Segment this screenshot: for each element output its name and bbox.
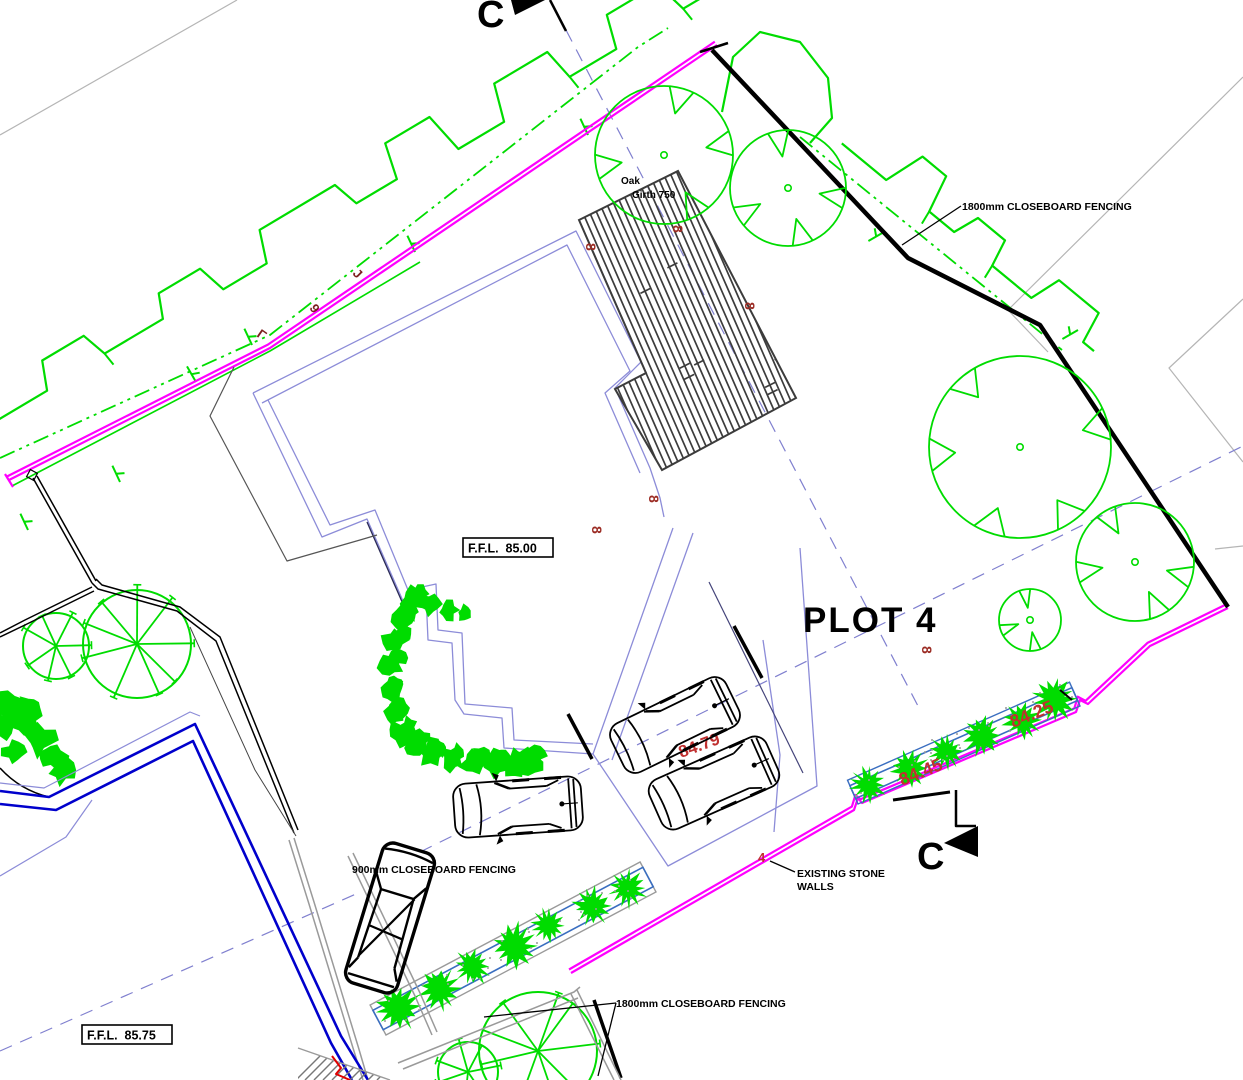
svg-text:4: 4: [758, 850, 766, 865]
svg-text:8: 8: [919, 646, 935, 654]
svg-text:WALLS: WALLS: [797, 881, 834, 893]
svg-text:C: C: [917, 836, 944, 878]
svg-text:EXISTING STONE: EXISTING STONE: [797, 868, 885, 880]
svg-text:C: C: [477, 0, 504, 36]
svg-text:Girth 750: Girth 750: [632, 190, 676, 201]
svg-text:Oak: Oak: [621, 176, 640, 187]
svg-text:1800mm CLOSEBOARD FENCING: 1800mm CLOSEBOARD FENCING: [962, 201, 1132, 213]
svg-text:PLOT 4: PLOT 4: [803, 601, 938, 640]
svg-text:8: 8: [589, 526, 605, 534]
svg-text:8: 8: [646, 495, 662, 503]
svg-text:F.F.L. 85.00: F.F.L. 85.00: [468, 542, 537, 556]
svg-text:8: 8: [742, 302, 758, 310]
svg-text:F.F.L. 85.75: F.F.L. 85.75: [87, 1029, 156, 1043]
svg-text:8: 8: [670, 225, 686, 233]
svg-text:8: 8: [583, 243, 599, 251]
svg-text:1800mm CLOSEBOARD FENCING: 1800mm CLOSEBOARD FENCING: [616, 998, 786, 1010]
